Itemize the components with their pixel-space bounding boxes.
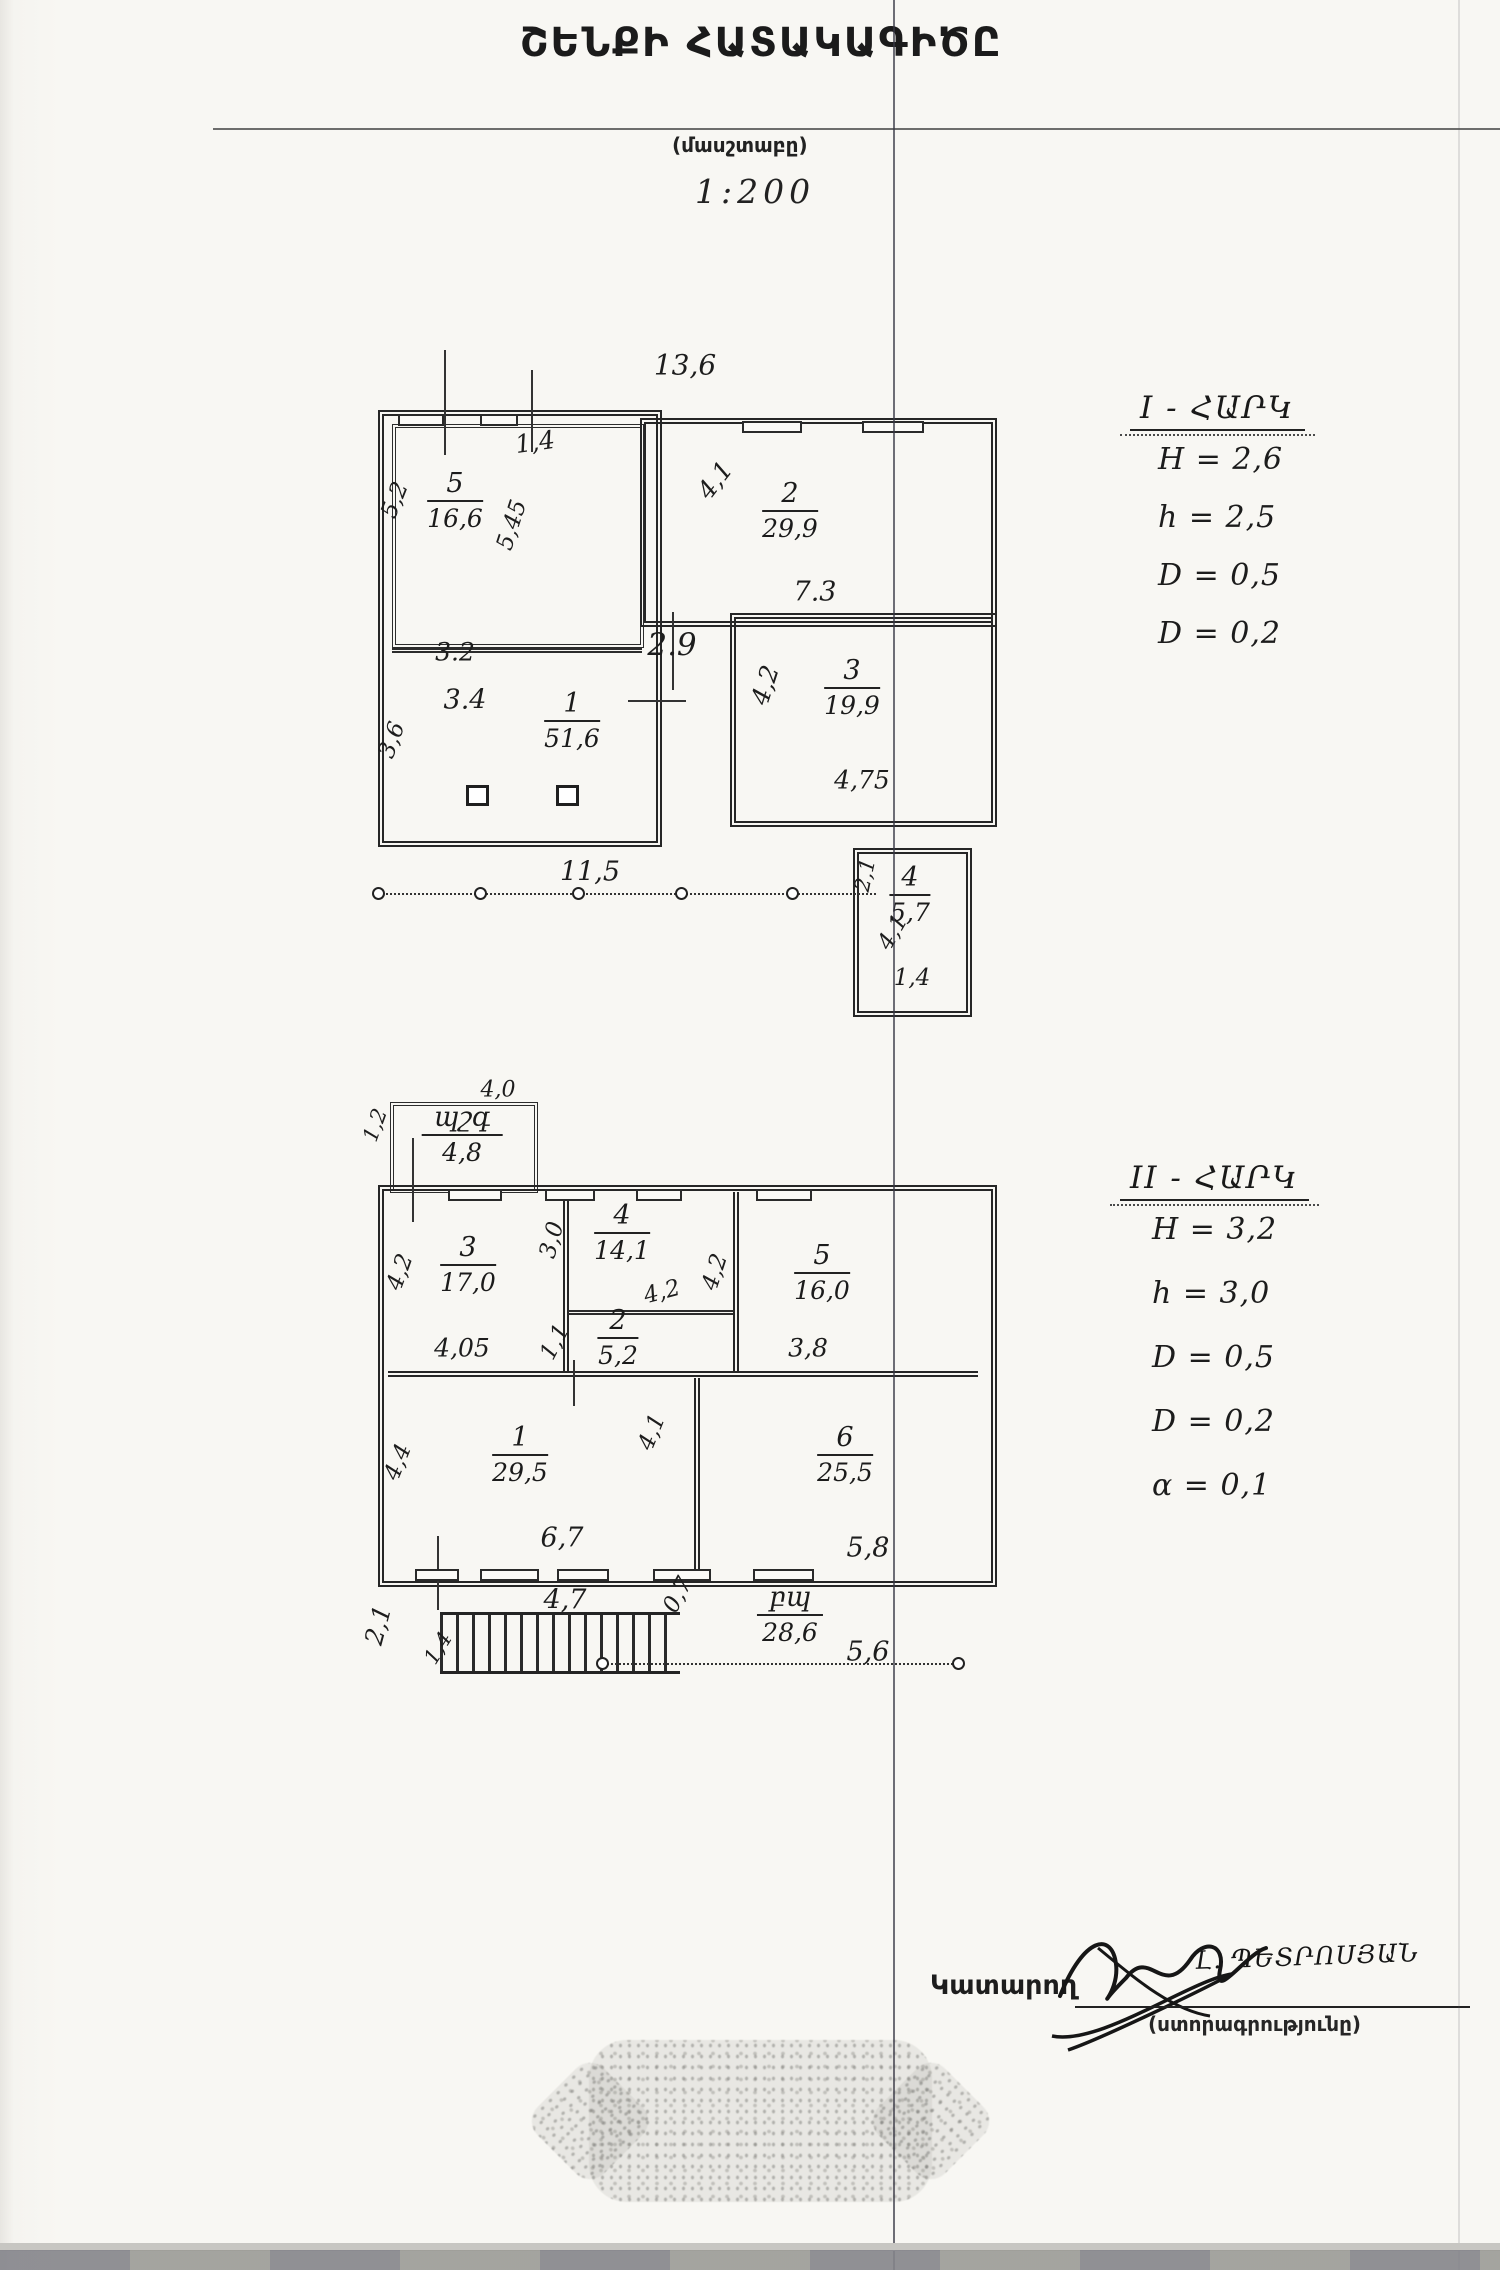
window-mark bbox=[545, 1189, 595, 1201]
floor2-heading: II - ՀԱՐԿ bbox=[1120, 1160, 1309, 1201]
floor-parameter: α = 0,1 bbox=[1152, 1468, 1277, 1503]
dimension-tick bbox=[444, 350, 446, 455]
floor1-parameters: H = 2,6h = 2,5D = 0,5D = 0,2 bbox=[1158, 442, 1283, 651]
window-mark bbox=[557, 1569, 609, 1581]
scan-line-vertical bbox=[893, 0, 895, 2270]
floor2-parameters: H = 3,2h = 3,0D = 0,5D = 0,2α = 0,1 bbox=[1152, 1212, 1277, 1503]
floor-parameter: h = 3,0 bbox=[1152, 1276, 1277, 1311]
dimension-label: 3.4 bbox=[444, 685, 487, 716]
porch-column bbox=[786, 887, 799, 900]
dimension-label: 4,05 bbox=[434, 1334, 490, 1363]
dimension-label: 11,5 bbox=[560, 857, 620, 888]
floor-parameter: D = 0,2 bbox=[1158, 616, 1283, 651]
page-title: ՇԵՆՔԻ ՀԱՏԱԿԱԳԻԾԸ bbox=[520, 20, 1003, 66]
room-label: պշգ4,8 bbox=[422, 1102, 503, 1167]
column-mark bbox=[466, 785, 489, 806]
porch-column bbox=[675, 887, 688, 900]
scan-line-faint bbox=[1458, 0, 1460, 2270]
window-mark bbox=[448, 1189, 502, 1201]
dimension-tick bbox=[412, 1138, 414, 1222]
window-mark bbox=[480, 1569, 539, 1581]
porch-column bbox=[474, 887, 487, 900]
room-label: 317,0 bbox=[440, 1232, 496, 1297]
porch-column bbox=[372, 887, 385, 900]
floor2-wall-room4-5 bbox=[733, 1192, 739, 1372]
dimension-label: 2,1 bbox=[359, 1602, 397, 1648]
window-mark bbox=[753, 1569, 814, 1581]
room-label: բպ28,6 bbox=[757, 1582, 823, 1647]
dimension-label: 4,7 bbox=[544, 1585, 587, 1616]
floor2-room2-wall bbox=[568, 1310, 733, 1315]
dimension-label: 4,75 bbox=[834, 766, 890, 795]
dimension-label: 3,8 bbox=[788, 1334, 828, 1363]
signature-line bbox=[1075, 2006, 1470, 2008]
room-label: 516,0 bbox=[794, 1240, 850, 1305]
room-label: 625,5 bbox=[817, 1422, 873, 1487]
dimension-label: 6,7 bbox=[541, 1523, 584, 1554]
floor2-middle-wall bbox=[388, 1371, 978, 1377]
dimension-label: 5,6 bbox=[847, 1637, 890, 1668]
dimension-label: 1,4 bbox=[894, 965, 931, 991]
room-label: 129,5 bbox=[492, 1422, 548, 1487]
floor-parameter: D = 0,2 bbox=[1152, 1404, 1277, 1439]
header-rule bbox=[213, 128, 1500, 130]
signature-scrawl bbox=[1038, 1918, 1368, 2058]
window-mark bbox=[480, 414, 518, 426]
floor1-heading: I - ՀԱՐԿ bbox=[1130, 390, 1305, 431]
floor-parameter: h = 2,5 bbox=[1158, 500, 1283, 535]
stamp-blob bbox=[537, 2040, 984, 2202]
room-label: 151,6 bbox=[544, 688, 600, 753]
room-label: 414,1 bbox=[594, 1200, 650, 1265]
room-label: 45,7 bbox=[889, 862, 930, 927]
scanned-page: ՇԵՆՔԻ ՀԱՏԱԿԱԳԻԾԸ (մասշտաբը) 1:200 bbox=[0, 0, 1500, 2270]
room-label: 516,6 bbox=[427, 468, 483, 533]
window-mark bbox=[756, 1189, 812, 1201]
scale-caption: (մասշտաբը) bbox=[672, 133, 808, 157]
dimension-label: 4,0 bbox=[481, 1078, 516, 1103]
floor-parameter: H = 3,2 bbox=[1152, 1212, 1277, 1247]
floor-parameter: H = 2,6 bbox=[1158, 442, 1283, 477]
veranda-post bbox=[952, 1657, 965, 1670]
floor1-hall-wall bbox=[392, 648, 642, 653]
column-mark bbox=[556, 785, 579, 806]
window-mark bbox=[742, 421, 802, 433]
floor2-veranda-line bbox=[600, 1663, 960, 1665]
dimension-label: 3.2 bbox=[435, 638, 475, 667]
room-label: 319,9 bbox=[824, 655, 880, 720]
room-label: 229,9 bbox=[762, 478, 818, 543]
floor-parameter: D = 0,5 bbox=[1152, 1340, 1277, 1375]
dimension-tick bbox=[628, 700, 686, 702]
veranda-post bbox=[596, 1657, 609, 1670]
scale-value: 1:200 bbox=[695, 172, 815, 211]
scan-bottom-strip bbox=[0, 2250, 1500, 2270]
window-mark bbox=[415, 1569, 459, 1581]
porch-column bbox=[572, 887, 585, 900]
dimension-tick bbox=[573, 1360, 575, 1406]
signature-caption: (ստորագրությունը) bbox=[1148, 2012, 1361, 2036]
dimension-label: 1,2 bbox=[358, 1105, 392, 1145]
dimension-label: 7.3 bbox=[794, 577, 837, 608]
dimension-label: 1,4 bbox=[513, 425, 556, 459]
floor1-porch-line bbox=[378, 893, 876, 895]
dimension-label: 13,6 bbox=[654, 349, 716, 382]
room-label: 25,2 bbox=[597, 1305, 638, 1370]
dimension-label: 5,8 bbox=[847, 1533, 890, 1564]
floor-parameter: D = 0,5 bbox=[1158, 558, 1283, 593]
floor2-wall-room1-6 bbox=[694, 1378, 700, 1575]
window-mark bbox=[398, 414, 444, 426]
dimension-label: 2.9 bbox=[647, 627, 696, 663]
